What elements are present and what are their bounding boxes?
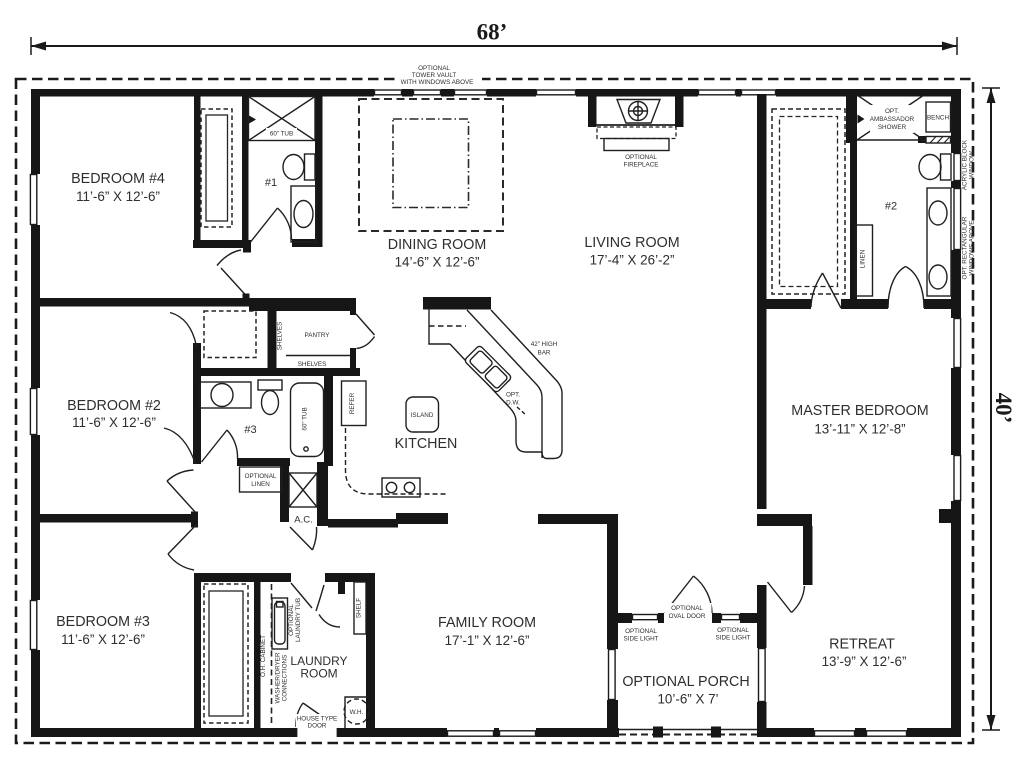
svg-text:TOWER VAULT: TOWER VAULT [412,72,457,79]
svg-text:PANTRY: PANTRY [305,332,331,339]
svg-text:REFER: REFER [349,392,356,414]
svg-text:OPTIONAL: OPTIONAL [245,473,277,480]
svg-text:WINDOWS ABOVE: WINDOWS ABOVE [969,221,976,276]
svg-text:OPTIONAL: OPTIONAL [288,604,295,636]
svg-text:17’-1” X 12’-6”: 17’-1” X 12’-6” [445,633,530,648]
svg-text:DINING ROOM: DINING ROOM [388,237,487,253]
svg-text:BEDROOM #3: BEDROOM #3 [56,614,150,630]
svg-text:BEDROOM #2: BEDROOM #2 [67,398,161,414]
svg-text:A.C.: A.C. [294,515,312,526]
svg-text:#1: #1 [265,177,277,189]
svg-text:DOOR: DOOR [308,723,327,730]
svg-text:11’-6” X 12’-6”: 11’-6” X 12’-6” [76,189,160,204]
svg-text:WINDOW: WINDOW [969,151,976,179]
svg-text:OVAL DOOR: OVAL DOOR [669,613,706,620]
svg-text:SIDE LIGHT: SIDE LIGHT [716,635,751,642]
svg-text:WASHER/DRYER: WASHER/DRYER [275,652,282,704]
svg-text:D.W.: D.W. [506,400,520,407]
svg-text:OPT.: OPT. [506,392,520,399]
svg-text:13’-9” X 12’-6”: 13’-9” X 12’-6” [822,654,907,669]
svg-text:11’-6” X 12’-6”: 11’-6” X 12’-6” [61,632,145,647]
svg-text:FIREPLACE: FIREPLACE [624,162,659,169]
svg-text:40’: 40’ [991,393,1016,424]
svg-text:W.H.: W.H. [350,709,364,716]
svg-text:17’-4” X 26’-2”: 17’-4” X 26’-2” [590,253,675,268]
svg-text:WITH WINDOWS ABOVE: WITH WINDOWS ABOVE [401,79,474,86]
svg-text:60” TUB: 60” TUB [270,131,293,138]
svg-text:60” TUB: 60” TUB [302,407,309,430]
svg-text:SHELF: SHELF [356,598,363,618]
svg-text:AMBASSADOR: AMBASSADOR [870,116,915,123]
svg-text:KITCHEN: KITCHEN [395,436,458,452]
svg-text:ISLAND: ISLAND [411,412,434,419]
svg-text:OPTIONAL: OPTIONAL [717,627,749,634]
svg-text:MASTER BEDROOM: MASTER BEDROOM [791,403,928,419]
svg-text:LINEN: LINEN [860,249,867,268]
svg-text:BAR: BAR [538,350,551,357]
svg-text:42” HIGH: 42” HIGH [531,341,558,348]
svg-text:SHELVES: SHELVES [277,322,284,351]
svg-text:HOUSE TYPE: HOUSE TYPE [297,716,337,723]
svg-text:13’-11” X 12’-8”: 13’-11” X 12’-8” [814,422,905,437]
svg-text:OPTIONAL: OPTIONAL [671,605,703,612]
svg-text:OPTIONAL: OPTIONAL [625,154,657,161]
svg-text:OPT. RECTANGULAR: OPT. RECTANGULAR [962,216,969,279]
svg-text:LINEN: LINEN [251,481,270,488]
svg-text:ROOM: ROOM [300,667,337,681]
svg-text:#3: #3 [244,424,256,436]
svg-text:14’-6” X 12’-6”: 14’-6” X 12’-6” [395,255,480,270]
svg-text:#2: #2 [885,201,897,213]
svg-text:BENCH: BENCH [927,115,949,122]
svg-text:OPTIONAL PORCH: OPTIONAL PORCH [622,674,749,690]
svg-text:11’-6” X 12’-6”: 11’-6” X 12’-6” [72,415,156,430]
svg-text:10’-6” X 7’: 10’-6” X 7’ [657,692,718,707]
svg-text:FAMILY ROOM: FAMILY ROOM [438,615,536,631]
svg-text:LIVING ROOM: LIVING ROOM [584,235,679,251]
svg-text:OPTIONAL: OPTIONAL [625,628,657,635]
svg-text:BEDROOM #4: BEDROOM #4 [71,171,165,187]
svg-text:RETREAT: RETREAT [829,637,895,653]
svg-text:SHELVES: SHELVES [298,361,327,368]
svg-text:O.H. CABINET: O.H. CABINET [260,635,267,677]
svg-text:SHOWER: SHOWER [878,124,907,131]
svg-text:68’: 68’ [477,20,508,45]
svg-text:OPT.: OPT. [885,108,899,115]
svg-text:SIDE LIGHT: SIDE LIGHT [624,636,659,643]
svg-text:CONNECTIONS: CONNECTIONS [282,655,289,702]
svg-text:LAUNDRY TUB: LAUNDRY TUB [295,598,302,642]
svg-text:OPTIONAL: OPTIONAL [418,65,450,72]
svg-text:ACRYLIC BLOCK: ACRYLIC BLOCK [962,139,969,190]
